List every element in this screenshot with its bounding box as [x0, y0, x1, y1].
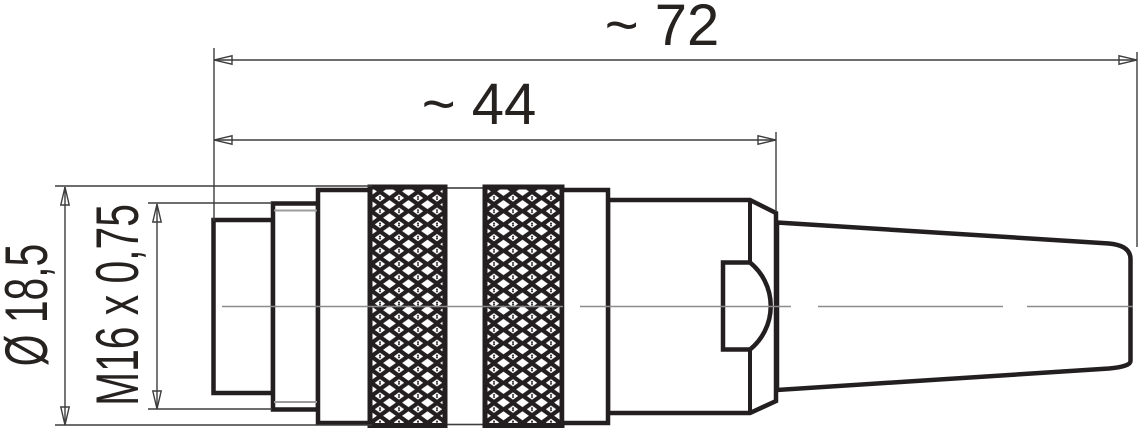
thread-label: M16 x 0,75: [84, 204, 151, 406]
dim-front-length: [214, 136, 776, 144]
dim-outer-diameter: [61, 187, 69, 425]
front-length-label: ~ 44: [422, 72, 537, 137]
outer-diameter-label: Ø 18,5: [0, 244, 60, 366]
dim-thread: [153, 204, 161, 409]
connector-technical-drawing: ~ 72 ~ 44 Ø 18,5 M16 x 0,75: [0, 0, 1139, 429]
overall-length-label: ~ 72: [605, 0, 720, 58]
